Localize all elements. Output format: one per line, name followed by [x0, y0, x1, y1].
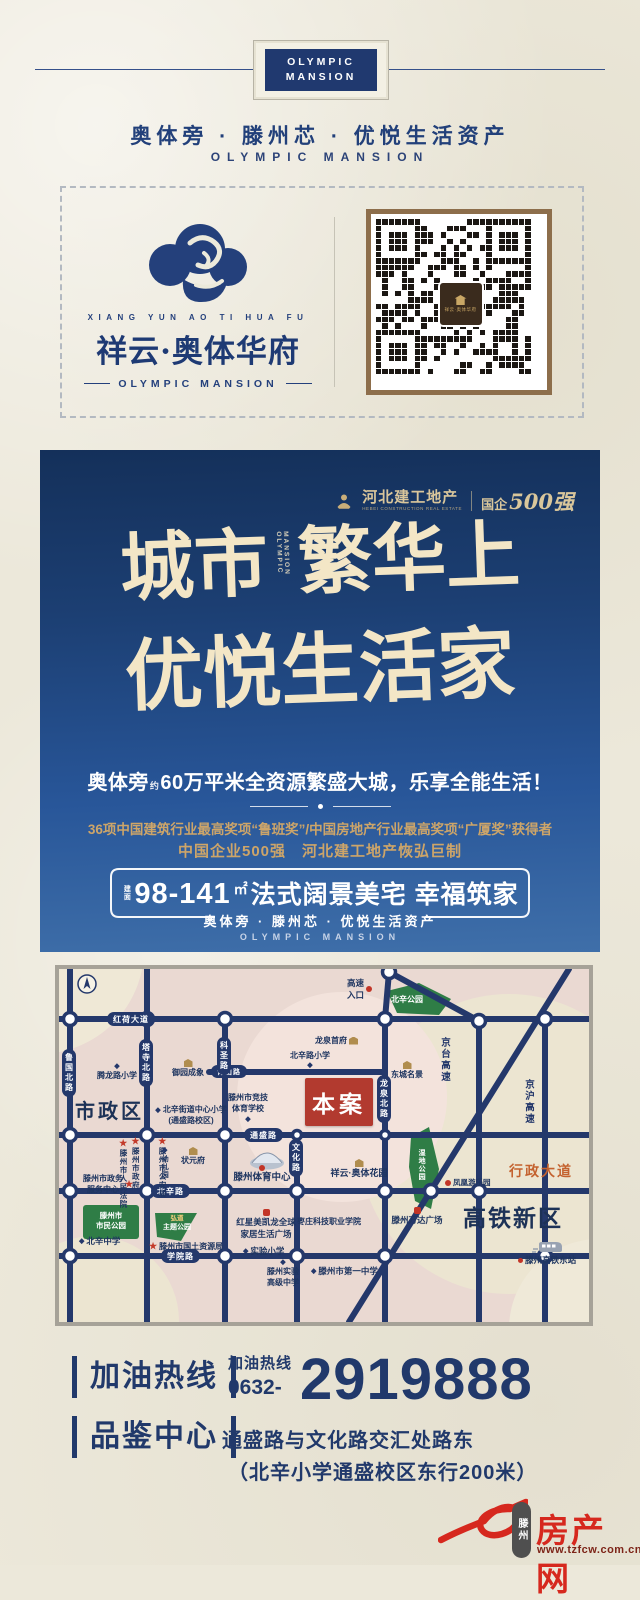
brand-en-row: OLYMPIC MANSION [84, 378, 311, 390]
building-icon [355, 1159, 364, 1167]
brand-name: 祥云·奥体华府 [96, 326, 300, 371]
area-unit: ㎡ [234, 879, 248, 899]
train-icon [531, 1241, 563, 1254]
compass-icon [78, 975, 96, 993]
building-icon [189, 1147, 198, 1155]
hotline-prefix-block: 加油热线 0632- [228, 1356, 292, 1399]
park-theme: 弘道 主题公园 [157, 1215, 197, 1233]
brand-card: XIANG YUN AO TI HUA FU 祥云·奥体华府 OLYMPIC M… [60, 186, 584, 418]
poi-aoti-garden: 祥云·奥体花园 [307, 1159, 411, 1180]
developer-divider [471, 491, 472, 511]
park-shimin: 滕州市 市民公园 [85, 1211, 137, 1231]
poi-zaozhuang-college: 枣庄科技职业学院 [297, 1217, 381, 1227]
banner-sub-en: OLYMPIC MANSION [40, 932, 600, 942]
red-square-icon [414, 1207, 421, 1214]
developer-subtitle: HEBEI CONSTRUCTION REAL ESTATE [362, 507, 462, 512]
cloud-logo-icon [128, 215, 268, 307]
area-range: 98-141 [134, 878, 230, 911]
road-longquan: 龙泉北路 [377, 1075, 391, 1123]
brand-logo-block: XIANG YUN AO TI HUA FU 祥云·奥体华府 OLYMPIC M… [62, 215, 334, 390]
tzfcw-city-pill: 滕州 [512, 1502, 531, 1558]
poi-land-bureau: ★滕州市国土资源局 [149, 1241, 223, 1252]
developer-emblem-icon [335, 492, 353, 510]
poi-tenglong-primary: ◆腾龙路小学 [87, 1063, 147, 1081]
banner-sub-cn: 奥体旁 · 滕州芯 · 优悦生活资产 [40, 911, 600, 930]
area-slogan: 法式阔景美宅 幸福筑家 [251, 875, 519, 911]
divider-dot [318, 804, 323, 809]
subline-prefix: 奥体旁 [87, 766, 149, 795]
poi-longquan-mansion: 龙泉首府 [315, 1035, 358, 1046]
poi-sports-school: 滕州市竞技 体育学校 ◆ [219, 1093, 277, 1123]
poi-east-station: 滕州高铁东站 [507, 1241, 587, 1266]
qr-center-logo: 祥云·奥体华府 [438, 281, 484, 327]
poi-first-middle: ◆滕州市第一中学 [311, 1265, 378, 1277]
ornament-divider [40, 804, 600, 809]
brand-en: OLYMPIC MANSION [118, 378, 277, 390]
poi-zhuangyuanfu: 状元府 [173, 1147, 213, 1166]
qr-logo-emblem-icon [455, 295, 467, 305]
poi-service-center: 滕州市政务服务中心 ★ [83, 1173, 133, 1195]
school-icon: ◆ [155, 1107, 160, 1114]
zone-shizhengqu: 市政区 [75, 1095, 144, 1124]
hotline-label: 加油热线 [72, 1356, 236, 1398]
school-icon: ◆ [311, 1268, 316, 1275]
road-kesheng: 科圣路 [217, 1037, 231, 1075]
hero-banner: 河北建工地产 HEBEI CONSTRUCTION REAL ESTATE 国企… [40, 450, 600, 952]
developer-name: 河北建工地产 [362, 490, 462, 505]
school-icon: ◆ [114, 1063, 119, 1070]
poi-highway-entrance: 高速入口 [347, 977, 372, 1001]
road-honghe: 红荷大道 [107, 1012, 155, 1026]
award-line1: 36项中国建筑行业最高奖项“鲁班奖”/中国房地产行业最高奖项“广厦奖”获得者 [40, 818, 600, 838]
subline-approx: 约 [150, 779, 160, 795]
poi-yuyuan: 御园成象 [165, 1059, 211, 1078]
address-line1: 通盛路与文化路交汇处路东 [222, 1424, 474, 1453]
red-dot-icon [366, 986, 372, 992]
school-icon: ◆ [162, 1147, 167, 1154]
park-wetland: 湿地公园 [417, 1149, 426, 1181]
red-dot-icon [445, 1180, 451, 1186]
qr-logo-text: 祥云·奥体华府 [445, 307, 477, 313]
location-map: 红荷大道 通盛路 北辛路 学院路 青山路 鲁国北路 塔寺北路 科圣路 文化路 龙… [55, 965, 593, 1326]
rule-right [286, 383, 312, 385]
header-badge-inner: OLYMPIC MANSION [265, 49, 377, 91]
area-label: 建面 [121, 885, 131, 901]
park-beixin: 北辛公园 [391, 995, 423, 1005]
poi-beixin-middle: ◆北辛中学 [79, 1235, 120, 1247]
building-icon [349, 1037, 358, 1045]
subline-text: 60万平米全资源繁盛大城，乐享全能生活！ [160, 766, 552, 795]
badge-line1: OLYMPIC [287, 55, 355, 70]
poi-wanda: 滕州万达广场 [383, 1207, 451, 1226]
school-icon: ◆ [280, 1259, 285, 1266]
road-tongsheng: 通盛路 [244, 1128, 283, 1142]
headline-line2: 优悦生活家 [39, 618, 602, 723]
school-icon: ◆ [79, 1238, 84, 1245]
phone-number: 2919888 [300, 1346, 533, 1413]
poi-shiyan-primary: ◆实验小学 [243, 1245, 284, 1257]
brand-en-small: XIANG YUN AO TI HUA FU [88, 313, 309, 322]
school-icon: ◆ [245, 1116, 250, 1123]
phone-prefix: 0632- [228, 1376, 292, 1399]
building-icon [403, 1061, 412, 1069]
hotline-small-label: 加油热线 [228, 1356, 292, 1373]
poi-dongcheng: 东城名景 [385, 1061, 429, 1080]
headline-line1: 城市 MANSION OLYMPIC 繁华上 [39, 512, 601, 613]
headline-1b: 繁华上 [297, 515, 522, 604]
poi-sports-center: 滕州体育中心 [219, 1165, 305, 1184]
site-marker: 本案 [305, 1078, 373, 1126]
school-icon: ◆ [243, 1248, 248, 1255]
building-icon [184, 1059, 193, 1067]
headline-vertical-en: MANSION OLYMPIC [275, 531, 291, 597]
road-jinghu: 京沪高速 [521, 1079, 535, 1125]
road-luguo: 鲁国北路 [62, 1049, 76, 1097]
banner-subline: 奥体旁 约 60万平米全资源繁盛大城，乐享全能生活！ [40, 766, 600, 795]
address-line2: （北辛小学通盛校区东行200米） [228, 1456, 537, 1485]
poi-shiyan-high: ◆ 滕州实验 高级中学 [261, 1259, 305, 1289]
tzfcw-city: 滕州 [514, 1518, 529, 1542]
road-jingtai: 京台高速 [437, 1037, 451, 1083]
tzfcw-url: www.tzfcw.com.cn [537, 1544, 640, 1556]
headline-1a: 城市 [119, 524, 270, 611]
top500-label: 500强 [509, 486, 574, 516]
range-line: 建面 98-141 ㎡ 法式阔景美宅 幸福筑家 [110, 875, 530, 911]
poi-fenghuang: 凤凰游乐园 [445, 1177, 491, 1188]
rule-left [84, 383, 110, 385]
soe-500-badge: 国企 500强 [481, 486, 574, 516]
poster-page: { "header": { "badge1": "OLYMPIC", "badg… [0, 0, 640, 1565]
divider-line-left [250, 806, 308, 807]
poi-beixinlu-primary: 北辛路小学◆ [279, 1051, 341, 1069]
zone-gaotie-xinqu: 高铁新区 [463, 1199, 563, 1233]
qr-frame: 祥云·奥体华府 [366, 209, 552, 395]
tagline-cn: 奥体旁 · 滕州芯 · 优悦生活资产 [0, 120, 640, 150]
center-label: 品鉴中心 [72, 1416, 236, 1458]
poi-hongxing: 红星美凯龙全球 家居生活广场 [227, 1209, 305, 1240]
award-line2: 中国企业500强 河北建工地产恢弘巨制 [40, 840, 600, 861]
divider-line-right [333, 806, 391, 807]
road-xingzheng: 行政大道 [509, 1163, 573, 1181]
red-square-icon [263, 1209, 270, 1216]
soe-label: 国企 [481, 494, 507, 513]
red-dot-icon [259, 1165, 265, 1171]
badge-line2: MANSION [286, 70, 357, 85]
school-icon: ◆ [307, 1062, 312, 1069]
developer-logo-row: 河北建工地产 HEBEI CONSTRUCTION REAL ESTATE 国企… [335, 486, 574, 516]
header-badge: OLYMPIC MANSION [253, 40, 389, 100]
red-dot-icon [518, 1258, 523, 1263]
tagline-en: OLYMPIC MANSION [0, 150, 640, 164]
